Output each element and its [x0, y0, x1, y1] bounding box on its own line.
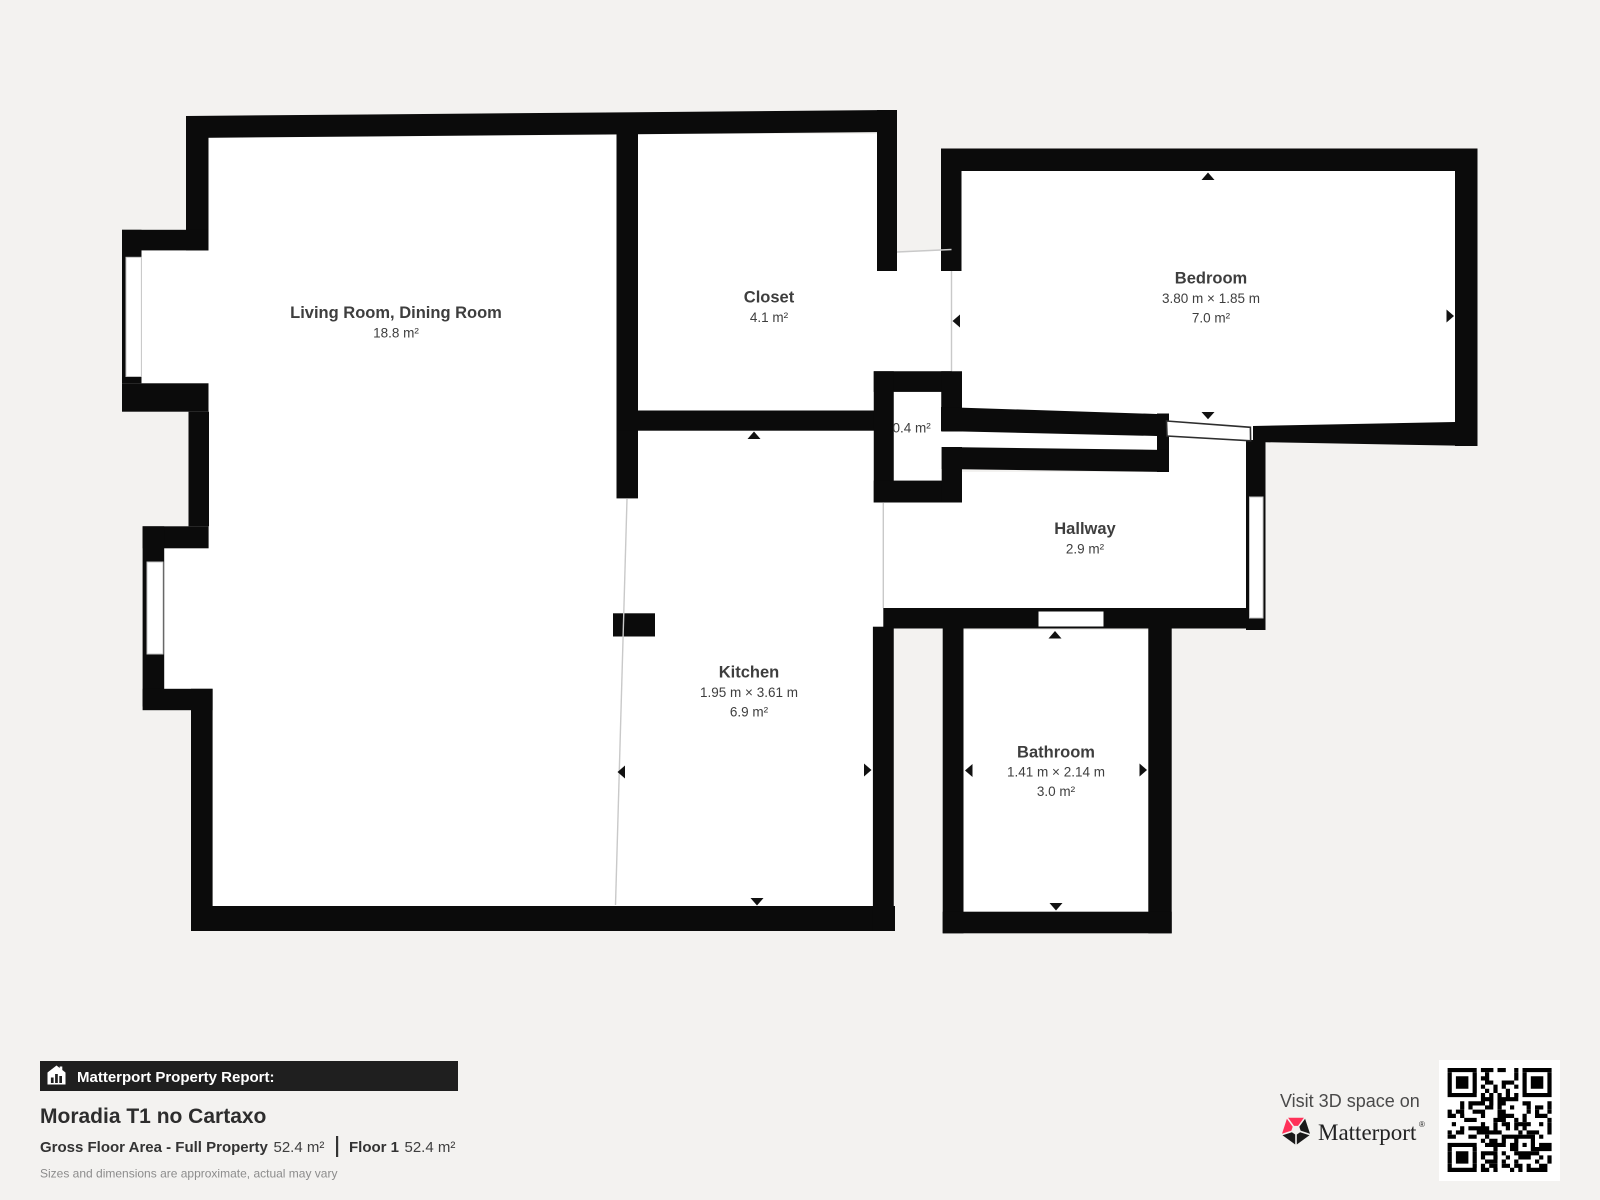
svg-text:Living Room, Dining Room: Living Room, Dining Room: [290, 304, 502, 322]
svg-text:Visit 3D space on: Visit 3D space on: [1280, 1091, 1420, 1111]
svg-text:Matterport: Matterport: [1318, 1120, 1417, 1145]
svg-text:6.9 m²: 6.9 m²: [730, 704, 769, 719]
svg-text:Gross Floor Area - Full Proper: Gross Floor Area - Full Property: [40, 1139, 268, 1156]
svg-text:Bathroom: Bathroom: [1017, 743, 1095, 761]
svg-text:Matterport Property Report:: Matterport Property Report:: [77, 1069, 275, 1086]
svg-text:0.4 m²: 0.4 m²: [893, 421, 932, 436]
svg-text:2.9 m²: 2.9 m²: [1066, 542, 1105, 557]
svg-text:7.0 m²: 7.0 m²: [1192, 310, 1231, 325]
svg-text:1.41 m × 2.14 m: 1.41 m × 2.14 m: [1007, 765, 1105, 780]
svg-text:52.4 m²: 52.4 m²: [274, 1139, 325, 1156]
svg-text:1.95 m × 3.61 m: 1.95 m × 3.61 m: [700, 685, 798, 700]
svg-text:®: ®: [1419, 1120, 1425, 1129]
svg-text:Hallway: Hallway: [1054, 520, 1116, 538]
svg-text:Floor 1: Floor 1: [349, 1139, 399, 1156]
svg-text:4.1 m²: 4.1 m²: [750, 310, 789, 325]
svg-text:52.4 m²: 52.4 m²: [405, 1139, 456, 1156]
svg-text:Sizes and dimensions are appro: Sizes and dimensions are approximate, ac…: [40, 1167, 337, 1181]
svg-text:18.8 m²: 18.8 m²: [373, 326, 419, 341]
svg-text:Closet: Closet: [744, 289, 795, 307]
svg-text:3.0 m²: 3.0 m²: [1037, 784, 1076, 799]
svg-text:Bedroom: Bedroom: [1175, 270, 1247, 288]
svg-text:Kitchen: Kitchen: [719, 664, 780, 682]
svg-text:Moradia T1 no Cartaxo: Moradia T1 no Cartaxo: [40, 1105, 266, 1128]
svg-text:3.80 m × 1.85 m: 3.80 m × 1.85 m: [1162, 291, 1260, 306]
